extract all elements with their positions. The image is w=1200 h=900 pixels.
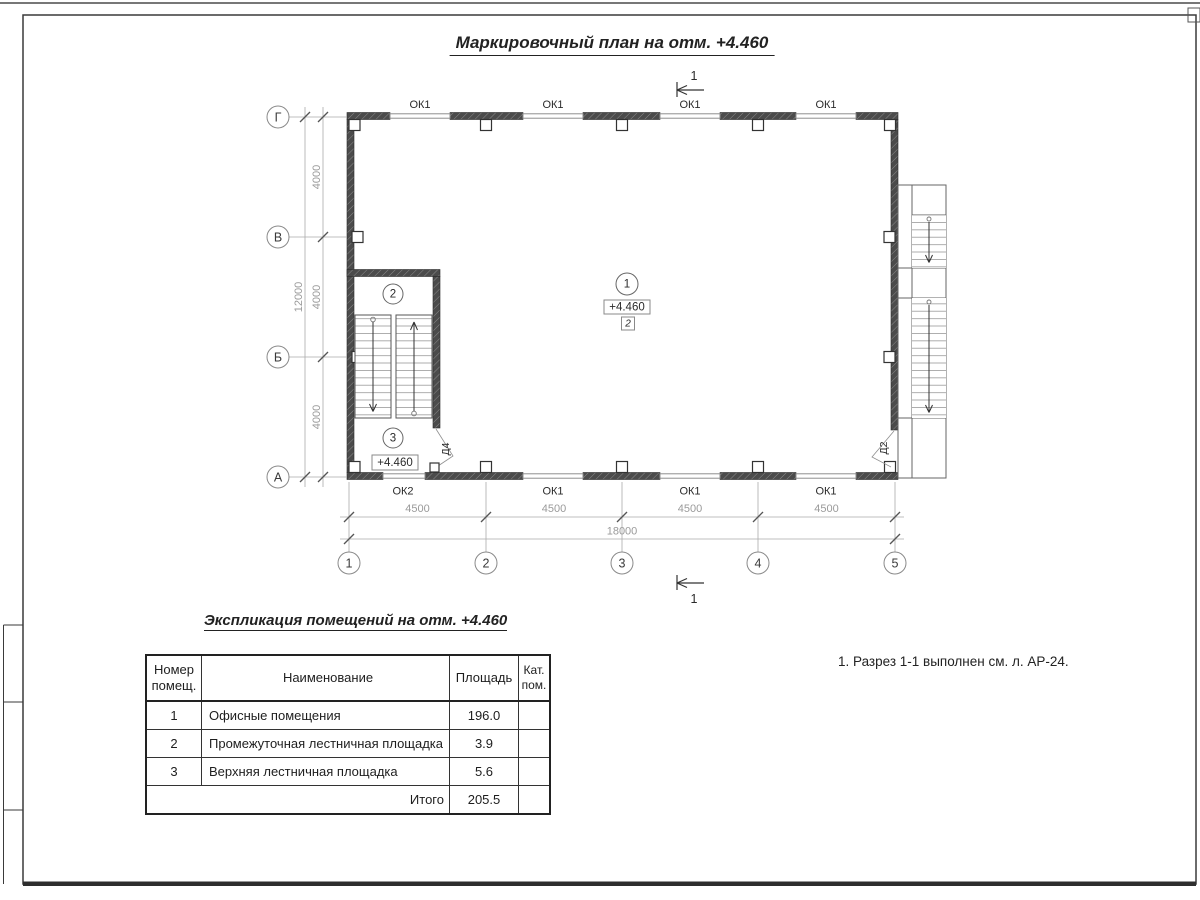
doors: Д4 Д2	[430, 429, 894, 472]
cell-room-area: 5.6	[450, 758, 519, 786]
schedule-title: Экспликация помещений на отм. +4.460	[204, 612, 507, 631]
drawing-sheet: Д4 Д2 4000 4000 4000 12000 Г В Б А	[0, 0, 1200, 900]
axis-bubble-a: А	[274, 471, 283, 485]
left-dimensions: 4000 4000 4000 12000 Г В Б А	[267, 106, 347, 488]
axis-bubble-5: 5	[892, 557, 899, 571]
window-tag: ОК1	[815, 99, 836, 111]
plan-title: Маркировочный план на отм. +4.460	[450, 33, 775, 56]
schedule-header-row: Номер помещ. Наименование Площадь Кат. п…	[146, 655, 550, 701]
axis-bubble-3: 3	[619, 557, 626, 571]
section-number: 1	[691, 69, 698, 83]
dimension-label: 4000	[311, 285, 323, 309]
axis-bubble-g: Г	[275, 111, 282, 125]
dimension-label: 4500	[814, 503, 838, 515]
dimension-total-label: 18000	[607, 526, 638, 538]
total-area: 205.5	[450, 786, 519, 815]
section-number: 1	[691, 592, 698, 606]
dimension-total-label: 12000	[293, 282, 305, 313]
exterior-stair	[898, 185, 946, 478]
window-tag: ОК1	[679, 99, 700, 111]
windows	[383, 114, 856, 478]
room-mark-3: 3 +4.460	[372, 428, 418, 470]
room-number: 1	[624, 279, 630, 291]
cell-room-number: 2	[146, 730, 202, 758]
window-tag: ОК1	[679, 486, 700, 498]
header-name: Наименование	[202, 655, 450, 701]
axis-bubble-v: В	[274, 231, 282, 245]
schedule-row: 3 Верхняя лестничная площадка 5.6	[146, 758, 550, 786]
note-text: 1. Разрез 1-1 выполнен см. л. АР-24.	[838, 654, 1069, 669]
axis-bubble-1: 1	[346, 557, 353, 571]
stairwell	[355, 315, 432, 418]
cell-room-name: Офисные помещения	[202, 701, 450, 730]
columns	[349, 120, 896, 473]
schedule-row: 2 Промежуточная лестничная площадка 3.9	[146, 730, 550, 758]
section-mark-bottom: 1	[677, 575, 704, 606]
section-mark-top: 1	[677, 69, 704, 97]
window-tag: ОК1	[542, 99, 563, 111]
axis-bubble-4: 4	[755, 557, 762, 571]
cell-room-category	[519, 730, 551, 758]
axis-bubble-b: Б	[274, 351, 282, 365]
total-label: Итого	[146, 786, 450, 815]
cell-room-category	[519, 701, 551, 730]
axis-bubble-2: 2	[483, 557, 490, 571]
cell-room-number: 1	[146, 701, 202, 730]
dimension-label: 4500	[405, 503, 429, 515]
header-category: Кат. пом.	[519, 655, 551, 701]
window-tag: ОК2	[392, 486, 413, 498]
schedule-total-row: Итого 205.5	[146, 786, 550, 815]
header-room-number: Номер помещ.	[146, 655, 202, 701]
window-tag: ОК1	[542, 486, 563, 498]
walls	[347, 113, 898, 480]
dimension-label: 4000	[311, 405, 323, 429]
window-tag: ОК1	[409, 99, 430, 111]
cell-room-name: Верхняя лестничная площадка	[202, 758, 450, 786]
room-schedule-table: Номер помещ. Наименование Площадь Кат. п…	[145, 654, 551, 815]
door-tag-d2: Д2	[878, 441, 890, 454]
cell-room-number: 3	[146, 758, 202, 786]
cell-room-category	[519, 758, 551, 786]
room-mark-1: 1 +4.460 2	[604, 273, 650, 330]
window-tags: ОК1 ОК1 ОК1 ОК1 ОК2 ОК1 ОК1 ОК1	[392, 99, 836, 498]
dimension-label: 4500	[678, 503, 702, 515]
dimension-label: 4000	[311, 165, 323, 189]
door-tag-d4: Д4	[440, 442, 452, 455]
cell-room-name: Промежуточная лестничная площадка	[202, 730, 450, 758]
schedule-row: 1 Офисные помещения 196.0	[146, 701, 550, 730]
room-number: 3	[390, 433, 396, 445]
header-area: Площадь	[450, 655, 519, 701]
total-category	[519, 786, 551, 815]
cell-room-area: 196.0	[450, 701, 519, 730]
floor-type-mark: 2	[624, 319, 631, 330]
title-block-edge	[23, 882, 1196, 887]
elevation-mark: +4.460	[377, 457, 413, 469]
dimension-label: 4500	[542, 503, 566, 515]
room-mark-2: 2	[383, 284, 403, 304]
elevation-mark: +4.460	[609, 302, 645, 314]
cell-room-area: 3.9	[450, 730, 519, 758]
room-number: 2	[390, 289, 396, 301]
window-tag: ОК1	[815, 486, 836, 498]
